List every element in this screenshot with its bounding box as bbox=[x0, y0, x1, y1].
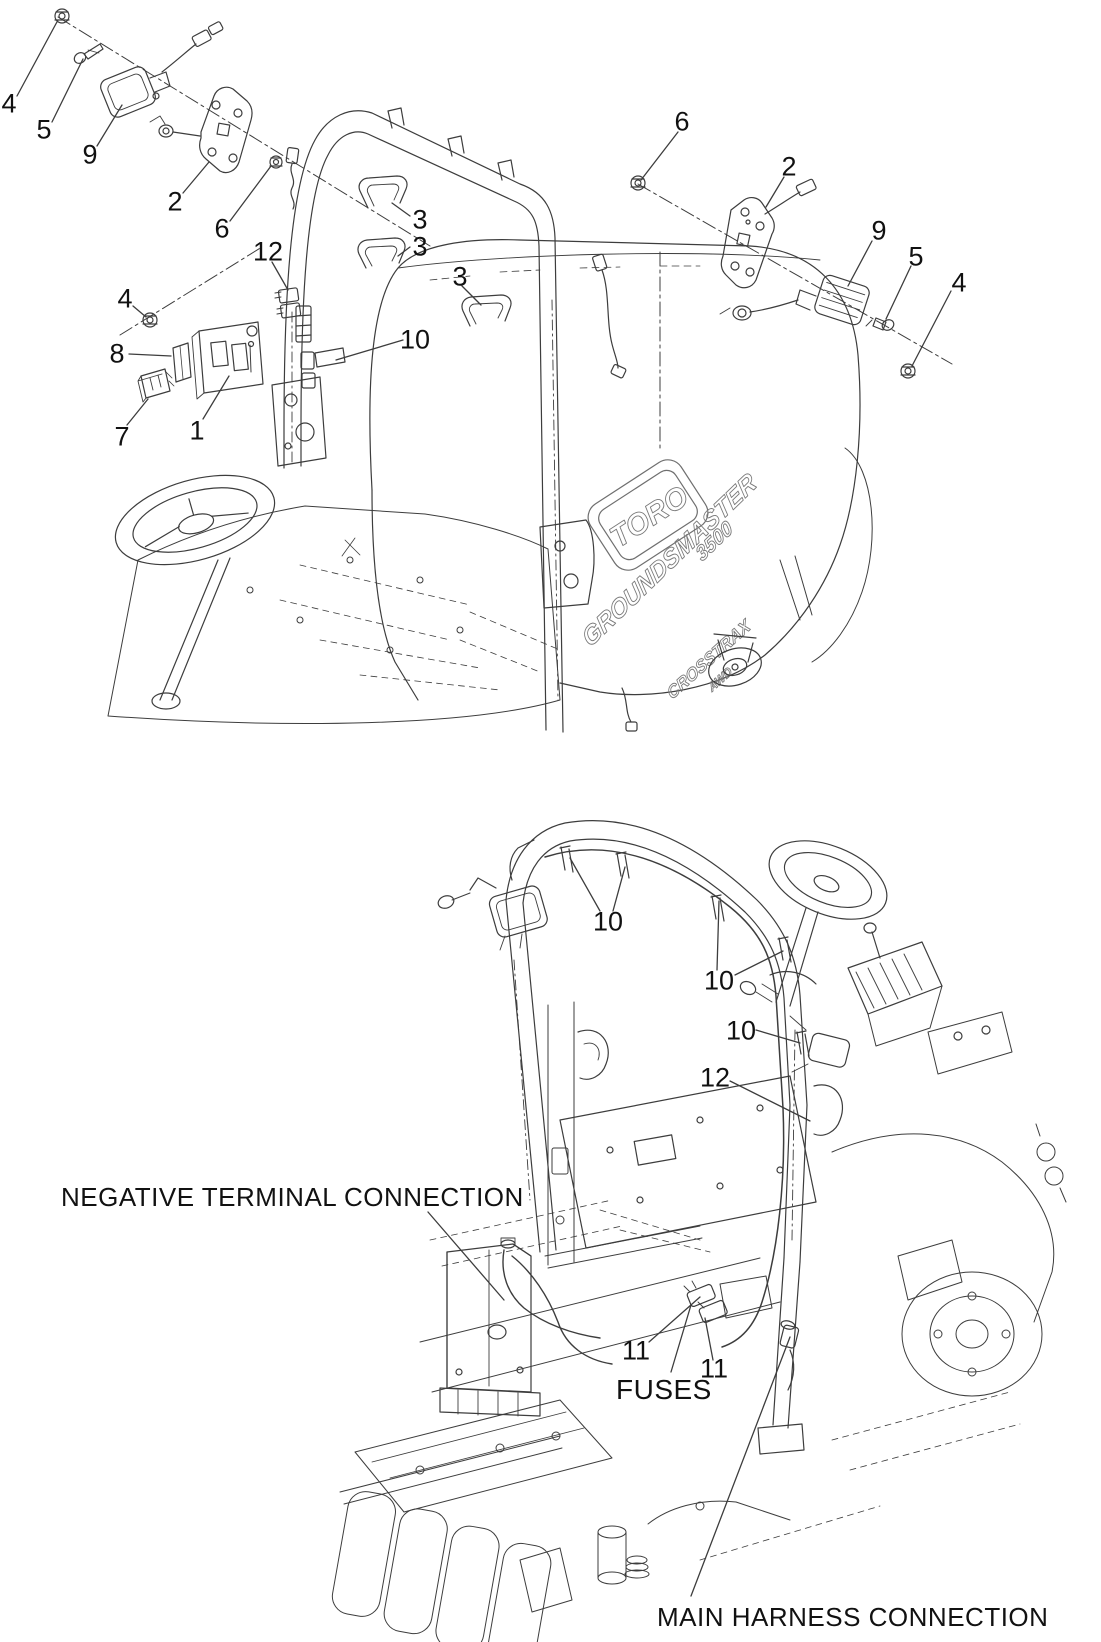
part-mount-plate-2-right bbox=[721, 179, 816, 288]
callout-part-5r: 5 bbox=[908, 244, 923, 271]
fuses-label: FUSES bbox=[616, 1376, 712, 1404]
part-mount-plate-1 bbox=[192, 322, 263, 399]
callout-part-2: 2 bbox=[167, 189, 182, 216]
part-clip-3a bbox=[359, 176, 407, 208]
callout-part-12b: 12 bbox=[700, 1065, 730, 1092]
rear-drive-assembly bbox=[832, 1124, 1066, 1470]
rops-bar-front bbox=[272, 108, 626, 732]
callout-part-12: 12 bbox=[253, 239, 283, 266]
callout-part-4: 4 bbox=[1, 91, 16, 118]
callout-part-3c: 3 bbox=[452, 264, 467, 291]
callout-part-2r: 2 bbox=[781, 154, 796, 181]
callout-part-3b: 3 bbox=[412, 234, 427, 261]
callout-part-10c: 10 bbox=[726, 1018, 756, 1045]
assembly-axis-lines bbox=[58, 17, 952, 448]
line-art: TORO GROUNDSMASTER 3500 CROSSTRAX AWD bbox=[0, 0, 1101, 1642]
part-clip-3c bbox=[462, 295, 511, 326]
battery bbox=[440, 1238, 612, 1416]
part-nut-6-left bbox=[270, 156, 282, 168]
callout-part-7: 7 bbox=[114, 424, 129, 451]
negative-terminal-connection-label: NEGATIVE TERMINAL CONNECTION bbox=[61, 1184, 524, 1210]
top-diagram: TORO GROUNDSMASTER 3500 CROSSTRAX AWD bbox=[17, 9, 952, 732]
seat-base bbox=[545, 1076, 816, 1268]
callout-part-8: 8 bbox=[109, 341, 124, 368]
callout-part-10a: 10 bbox=[593, 909, 623, 936]
callout-part-5: 5 bbox=[36, 117, 51, 144]
leader-lines-top bbox=[17, 20, 951, 425]
part-screw-5-left bbox=[72, 44, 103, 66]
main-harness-connector bbox=[780, 1319, 800, 1390]
part-regulator-9-right bbox=[720, 274, 871, 327]
callout-part-6r: 6 bbox=[674, 109, 689, 136]
part-clip-3b bbox=[358, 238, 405, 268]
bottom-diagram bbox=[325, 821, 1066, 1642]
steering-wheel-rear bbox=[758, 825, 898, 1006]
callout-part-1: 1 bbox=[189, 418, 204, 445]
part-nut-4-right bbox=[901, 364, 915, 378]
callout-part-3a: 3 bbox=[412, 207, 427, 234]
part-screw-5-right bbox=[866, 318, 896, 333]
callout-part-11a: 11 bbox=[622, 1338, 650, 1365]
headlight-installed-left bbox=[436, 840, 549, 950]
part-connector-12 bbox=[275, 288, 301, 319]
part-mount-plate-2-left bbox=[150, 87, 252, 172]
hood: TORO GROUNDSMASTER 3500 CROSSTRAX AWD bbox=[370, 240, 872, 731]
callout-part-6: 6 bbox=[214, 216, 229, 243]
callout-part-10: 10 bbox=[400, 327, 430, 354]
callout-part-9: 9 bbox=[82, 142, 97, 169]
toro-logo-plate: TORO bbox=[582, 454, 714, 577]
callout-part-4r: 4 bbox=[951, 270, 966, 297]
control-console bbox=[848, 923, 1012, 1074]
parts-diagram-page: TORO GROUNDSMASTER 3500 CROSSTRAX AWD bbox=[0, 0, 1101, 1642]
part-bracket-8 bbox=[173, 343, 191, 382]
callout-part-10b: 10 bbox=[704, 968, 734, 995]
steering-wheel-front bbox=[105, 459, 285, 709]
part-switch-7 bbox=[138, 369, 174, 402]
main-harness-connection-label: MAIN HARNESS CONNECTION bbox=[657, 1604, 1048, 1630]
callout-part-4b: 4 bbox=[117, 286, 132, 313]
part-headlight-9-left bbox=[98, 21, 223, 119]
callout-part-9r: 9 bbox=[871, 218, 886, 245]
